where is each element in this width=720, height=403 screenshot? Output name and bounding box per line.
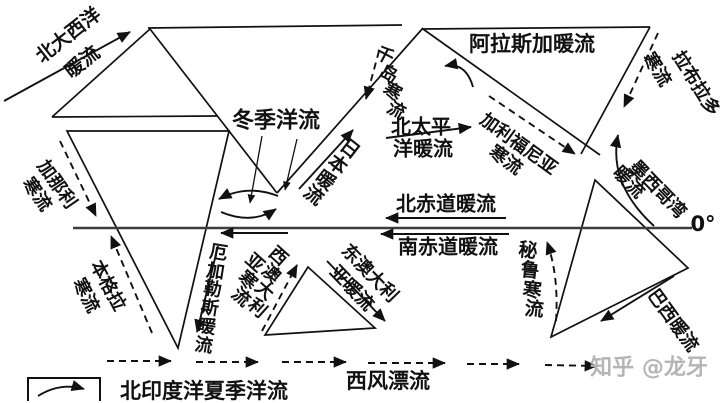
legend-curved-arrow-icon [38,387,84,396]
label-west-wind-drift: 西风漂流 [346,371,430,393]
label-winter-current: 冬季洋流 [232,111,320,134]
label-north-equatorial-warm: 北赤道暖流 [396,194,496,215]
coast-asia-north [148,25,402,28]
coast-north-america-top [423,27,650,29]
ocean-currents-diagram: 北大西洋暖流加那利寒流本格拉寒流冬季洋流日本暖流千岛寒流阿拉斯加暖流北太平洋暖流… [0,0,720,401]
arrow-alaska-warm [445,65,473,87]
label-north-pacific-warm-1: 北太平 [391,117,451,138]
arrow-winter-leader-1 [250,136,262,203]
label-north-pacific-warm-2: 洋暖流 [393,139,453,160]
ocean-currents-canvas [0,0,720,401]
coast-europe-south [52,116,217,117]
label-alaska-warm: 阿拉斯加暖流 [469,34,595,56]
label-south-equatorial-warm: 南赤道暖流 [398,237,498,258]
arrow-peru-cold [547,242,557,321]
arrow-winter-gyre-top [219,191,278,199]
arrow-winter-gyre-bottom [221,209,276,218]
watermark-zhihu: 知乎 @龙牙 [590,358,708,381]
label-legend-summer-current: 北印度洋夏季洋流 [120,381,288,403]
legend-box [28,378,100,401]
arrow-winter-leader-2 [285,139,297,190]
label-equator-0deg: 0° [690,214,715,236]
